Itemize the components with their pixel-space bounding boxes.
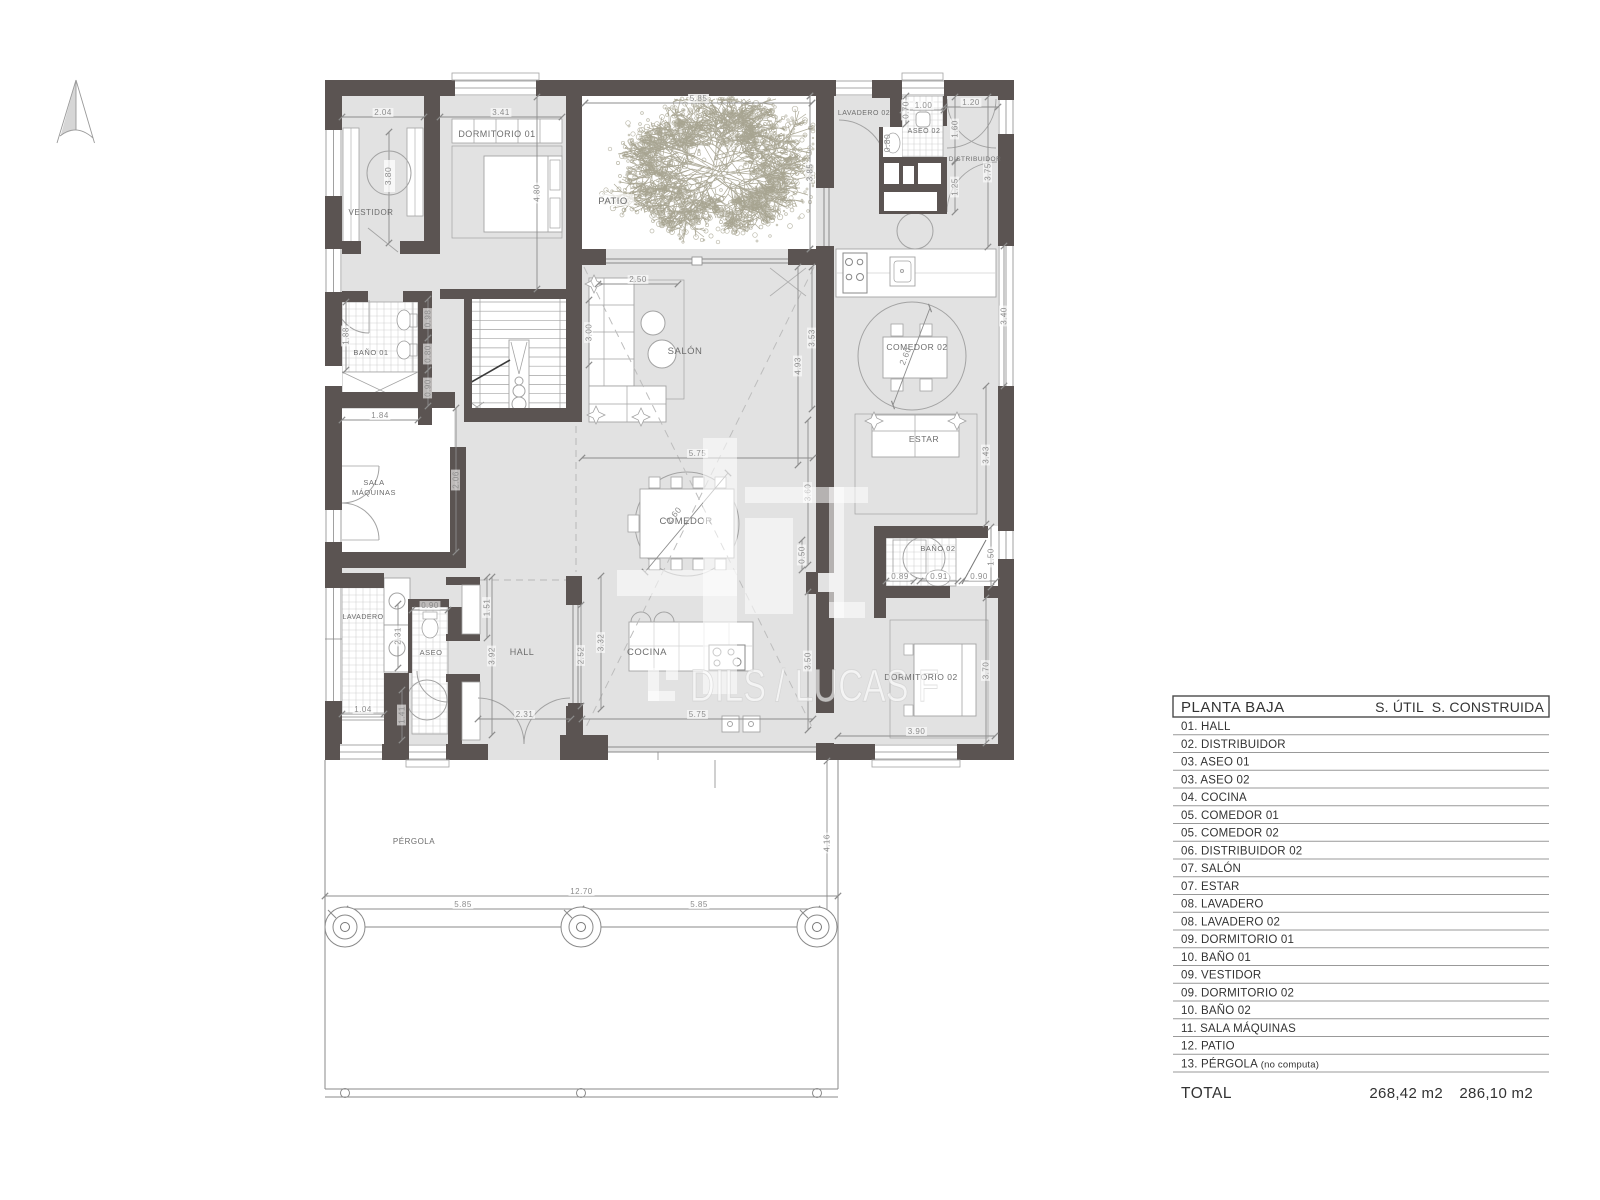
svg-text:2.50: 2.50: [629, 275, 647, 284]
svg-text:09. DORMITORIO 01: 09. DORMITORIO 01: [1181, 934, 1294, 946]
svg-text:5.75: 5.75: [689, 710, 707, 719]
svg-text:5.85: 5.85: [690, 94, 708, 103]
svg-text:PATIO: PATIO: [598, 196, 628, 207]
svg-text:268,42 m2: 268,42 m2: [1369, 1085, 1443, 1102]
svg-text:09. VESTIDOR: 09. VESTIDOR: [1181, 970, 1261, 982]
svg-text:0.80: 0.80: [882, 134, 892, 153]
svg-text:LAVADERO: LAVADERO: [342, 614, 383, 621]
svg-text:ASEO 02: ASEO 02: [908, 128, 941, 135]
svg-text:09. DORMITORIO 02: 09. DORMITORIO 02: [1181, 987, 1294, 999]
svg-text:2.52: 2.52: [577, 647, 586, 665]
svg-text:COMEDOR 02: COMEDOR 02: [886, 342, 947, 352]
svg-text:3.41: 3.41: [492, 108, 510, 117]
svg-text:1.00: 1.00: [915, 101, 933, 110]
svg-text:1.88: 1.88: [342, 327, 351, 345]
svg-text:0.50: 0.50: [798, 546, 807, 564]
svg-text:1.20: 1.20: [962, 98, 980, 107]
svg-text:COCINA: COCINA: [627, 647, 667, 658]
svg-text:4.93: 4.93: [794, 357, 803, 375]
svg-text:4.80: 4.80: [533, 184, 542, 202]
svg-text:0.91: 0.91: [930, 572, 948, 581]
svg-text:1.41: 1.41: [398, 706, 407, 724]
svg-text:04. COCINA: 04. COCINA: [1181, 792, 1247, 804]
svg-text:2.31: 2.31: [516, 710, 534, 719]
svg-text:3.43: 3.43: [982, 446, 991, 464]
svg-text:4.16: 4.16: [823, 834, 832, 852]
svg-text:07. SALÓN: 07. SALÓN: [1181, 862, 1241, 875]
svg-text:01. HALL: 01. HALL: [1181, 721, 1231, 733]
svg-text:3.53: 3.53: [808, 329, 817, 347]
svg-text:BAÑO 02: BAÑO 02: [920, 544, 955, 553]
svg-text:PLANTA BAJA: PLANTA BAJA: [1181, 699, 1285, 716]
svg-text:5.85: 5.85: [690, 900, 708, 909]
svg-text:10. BAÑO 01: 10. BAÑO 01: [1181, 951, 1251, 964]
svg-text:PÉRGOLA: PÉRGOLA: [393, 837, 435, 846]
svg-text:1.84: 1.84: [371, 411, 389, 420]
svg-text:S. CONSTRUIDA: S. CONSTRUIDA: [1432, 699, 1545, 715]
svg-text:3.00: 3.00: [585, 324, 594, 342]
svg-text:08. LAVADERO 02: 08. LAVADERO 02: [1181, 916, 1280, 928]
svg-text:S. ÚTIL: S. ÚTIL: [1375, 699, 1424, 715]
svg-text:1.60: 1.60: [951, 120, 960, 138]
svg-text:03. ASEO 02: 03. ASEO 02: [1181, 774, 1250, 786]
svg-text:06. DISTRIBUIDOR 02: 06. DISTRIBUIDOR 02: [1181, 845, 1302, 857]
svg-text:12. PATIO: 12. PATIO: [1181, 1041, 1235, 1053]
svg-text:BAÑO 01: BAÑO 01: [353, 348, 388, 357]
svg-text:DILS / LUCAS F: DILS / LUCAS F: [690, 662, 939, 712]
svg-text:DISTRIBUIDOR: DISTRIBUIDOR: [949, 156, 1002, 163]
svg-text:2.31: 2.31: [394, 627, 403, 645]
svg-text:3.90: 3.90: [908, 727, 926, 736]
svg-text:3.80: 3.80: [383, 167, 393, 186]
svg-text:DORMITORIO 01: DORMITORIO 01: [458, 129, 535, 139]
svg-text:0.89: 0.89: [891, 572, 909, 581]
svg-text:02. DISTRIBUIDOR: 02. DISTRIBUIDOR: [1181, 739, 1286, 751]
svg-text:3.70: 3.70: [982, 662, 991, 680]
svg-text:1.25: 1.25: [951, 178, 960, 196]
svg-text:0.90: 0.90: [424, 379, 433, 397]
svg-text:11. SALA MÁQUINAS: 11. SALA MÁQUINAS: [1181, 1022, 1296, 1035]
svg-text:3.40: 3.40: [1000, 307, 1009, 325]
svg-text:ESTAR: ESTAR: [909, 434, 939, 444]
svg-text:SALÓN: SALÓN: [668, 346, 703, 357]
svg-text:ASEO: ASEO: [420, 648, 443, 657]
svg-text:2.06: 2.06: [452, 471, 461, 489]
svg-text:0.90: 0.90: [970, 572, 988, 581]
svg-text:0.70: 0.70: [902, 101, 911, 119]
svg-text:12.70: 12.70: [570, 887, 593, 896]
svg-text:286,10 m2: 286,10 m2: [1459, 1085, 1533, 1102]
svg-text:05. COMEDOR 02: 05. COMEDOR 02: [1181, 828, 1279, 840]
svg-text:5.85: 5.85: [454, 900, 472, 909]
svg-text:2.04: 2.04: [374, 108, 392, 117]
svg-text:3.92: 3.92: [488, 647, 497, 665]
svg-text:VESTIDOR: VESTIDOR: [349, 208, 394, 217]
svg-text:13. PÉRGOLA (no computa): 13. PÉRGOLA (no computa): [1181, 1057, 1319, 1070]
svg-text:MÁQUINAS: MÁQUINAS: [352, 488, 396, 497]
svg-text:0.90: 0.90: [421, 601, 439, 610]
svg-text:1.51: 1.51: [483, 599, 492, 617]
svg-text:10. BAÑO 02: 10. BAÑO 02: [1181, 1004, 1251, 1017]
svg-text:1.50: 1.50: [987, 548, 996, 566]
svg-text:3.75: 3.75: [984, 163, 993, 181]
svg-text:SALA: SALA: [363, 478, 384, 487]
svg-text:HALL: HALL: [510, 647, 535, 657]
svg-text:05. COMEDOR 01: 05. COMEDOR 01: [1181, 810, 1279, 822]
svg-text:TOTAL: TOTAL: [1181, 1085, 1232, 1102]
svg-text:3.85: 3.85: [806, 164, 815, 182]
svg-text:03. ASEO 01: 03. ASEO 01: [1181, 757, 1250, 769]
svg-text:08. LAVADERO: 08. LAVADERO: [1181, 899, 1264, 911]
svg-text:1.04: 1.04: [354, 705, 372, 714]
svg-text:07. ESTAR: 07. ESTAR: [1181, 881, 1239, 893]
svg-text:0.98: 0.98: [424, 310, 433, 328]
svg-text:LAVADERO 02: LAVADERO 02: [838, 110, 890, 117]
svg-text:0.80: 0.80: [424, 345, 433, 363]
svg-text:3.32: 3.32: [597, 634, 606, 652]
